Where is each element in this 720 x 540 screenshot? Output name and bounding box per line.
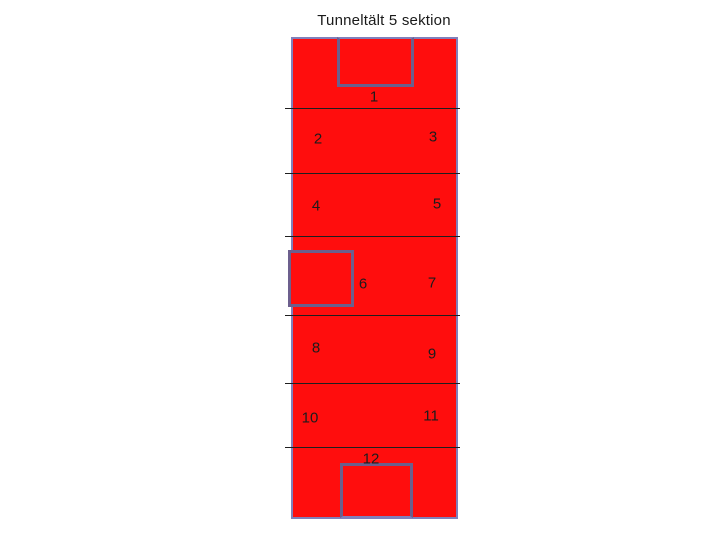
section-label-1: 1 (370, 90, 378, 105)
section-label-9: 9 (428, 347, 436, 362)
top-entrance-opening (337, 37, 414, 87)
diagram-title: Tunneltält 5 sektion (317, 12, 451, 29)
section-divider (285, 173, 460, 174)
section-label-7: 7 (428, 276, 436, 291)
section-label-8: 8 (312, 341, 320, 356)
left-side-opening (288, 250, 354, 307)
section-label-11: 11 (423, 409, 439, 424)
bottom-entrance-opening (340, 463, 413, 518)
section-divider (285, 383, 460, 384)
section-label-12: 12 (363, 452, 380, 467)
section-divider (285, 108, 460, 109)
section-label-6: 6 (359, 277, 367, 292)
section-divider (285, 315, 460, 316)
section-label-4: 4 (312, 199, 320, 214)
section-label-10: 10 (302, 411, 319, 426)
section-divider (285, 447, 460, 448)
section-label-2: 2 (314, 132, 322, 147)
section-label-5: 5 (433, 197, 441, 212)
section-label-3: 3 (429, 130, 437, 145)
section-divider (285, 236, 460, 237)
